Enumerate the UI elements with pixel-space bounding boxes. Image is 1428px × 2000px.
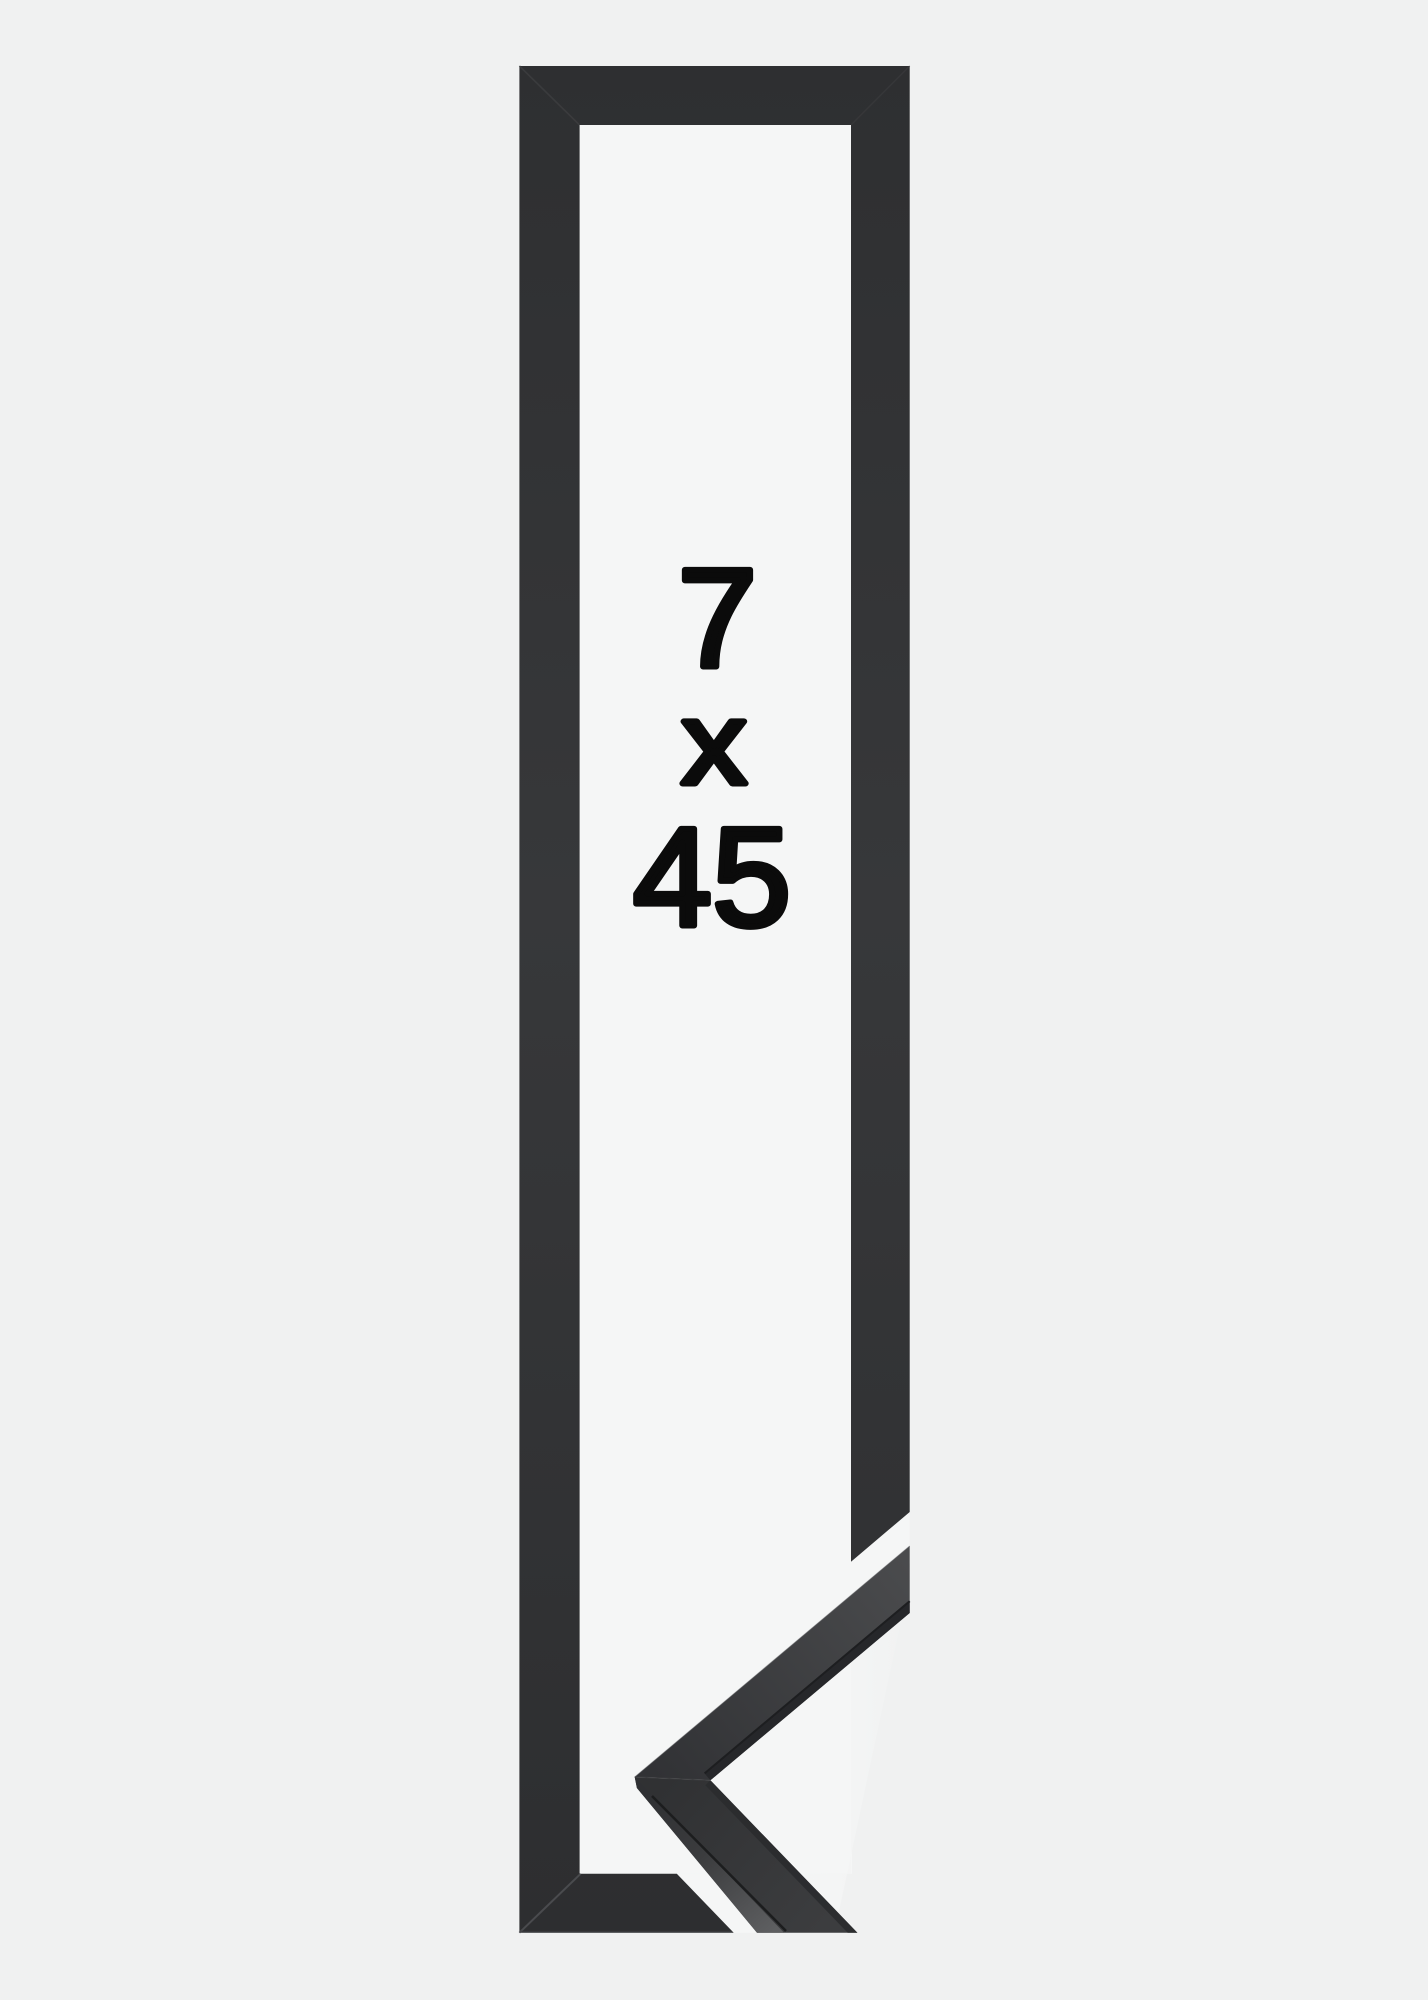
svg-text:45: 45: [633, 798, 791, 955]
svg-text:7: 7: [678, 541, 758, 697]
svg-text:x: x: [681, 678, 747, 809]
